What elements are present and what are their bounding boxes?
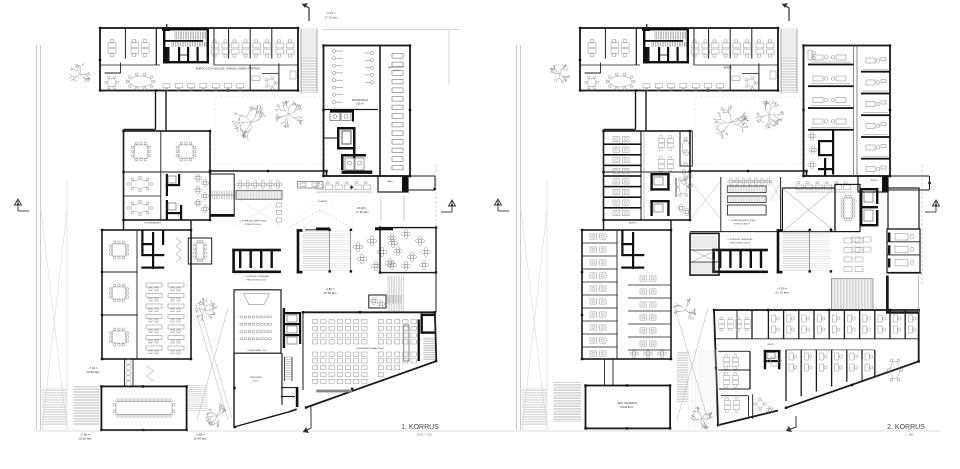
svg-text:56 m²: 56 m²: [393, 69, 398, 72]
svg-text:KONVERENTSISAAL 200m²: KONVERENTSISAAL 200m²: [356, 347, 384, 350]
svg-text:RUUM 80 m²: RUUM 80 m²: [620, 406, 634, 409]
svg-text:KÕRSU 1815 m²: KÕRSU 1815 m²: [245, 223, 262, 226]
svg-text:BÜROO: BÜROO: [871, 179, 878, 182]
svg-text:NÕUPIDAMISED: NÕUPIDAMISED: [145, 222, 162, 225]
svg-text:15.40 abs: 15.40 abs: [193, 437, 207, 441]
svg-text:80 m²: 80 m²: [253, 380, 258, 383]
svg-text:±0.00 / -2.50: ±0.00 / -2.50: [417, 433, 432, 437]
svg-text:KÕRSU 1303 m²: KÕRSU 1303 m²: [734, 223, 751, 226]
svg-text:1. KORRUSE BÜROOPIND: 1. KORRUSE BÜROOPIND: [239, 220, 267, 223]
svg-text:HALB: HALB: [388, 180, 394, 183]
svg-text:1. KORRUS: 1. KORRUS: [401, 424, 439, 431]
svg-text:15.40 abs: 15.40 abs: [323, 291, 337, 295]
svg-text:PIND KÕRSU 224 m²: PIND KÕRSU 224 m²: [730, 241, 750, 244]
svg-text:17.20 abs: 17.20 abs: [324, 16, 338, 20]
svg-text:15.00 abs: 15.00 abs: [78, 437, 92, 441]
svg-text:130 m²: 130 m²: [356, 103, 364, 106]
svg-text:FUAJEE: FUAJEE: [319, 200, 328, 203]
svg-text:2. KORRUSE TEHNSIKAD: 2. KORRUSE TEHNSIKAD: [727, 238, 753, 241]
svg-text:21.70 abs: 21.70 abs: [775, 291, 789, 295]
svg-text:10.80 abs: 10.80 abs: [86, 370, 100, 374]
svg-text:PIND KÕRSU 135 m²: PIND KÕRSU 135 m²: [247, 278, 267, 281]
svg-text:BENOPIND: BENOPIND: [250, 377, 262, 379]
svg-text:SPORDISAAL: SPORDISAAL: [352, 98, 369, 102]
svg-text:PRESIIDSAAL 77m²: PRESIIDSAAL 77m²: [248, 349, 267, 352]
svg-text:2. KORRUS: 2. KORRUS: [887, 424, 925, 431]
svg-text:VENT. SEADMETE: VENT. SEADMETE: [617, 402, 637, 405]
svg-text:BÜROO: BÜROO: [629, 222, 637, 225]
svg-text:MAHUTURÕGU: MAHUTURÕGU: [388, 66, 404, 69]
svg-text:-0.70 =: -0.70 =: [326, 11, 336, 15]
svg-text:2. KORRUSE BÜROOPIND: 2. KORRUSE BÜROOPIND: [728, 219, 756, 222]
svg-text:1. KORRUSE TEHNSIKAD: 1. KORRUSE TEHNSIKAD: [244, 275, 270, 278]
svg-text:1 : 250: 1 : 250: [905, 433, 913, 437]
svg-text:17.90 abs: 17.90 abs: [355, 210, 369, 214]
svg-text:BÜROO: BÜROO: [768, 343, 775, 346]
svg-text:BÜROO: BÜROO: [724, 67, 733, 70]
